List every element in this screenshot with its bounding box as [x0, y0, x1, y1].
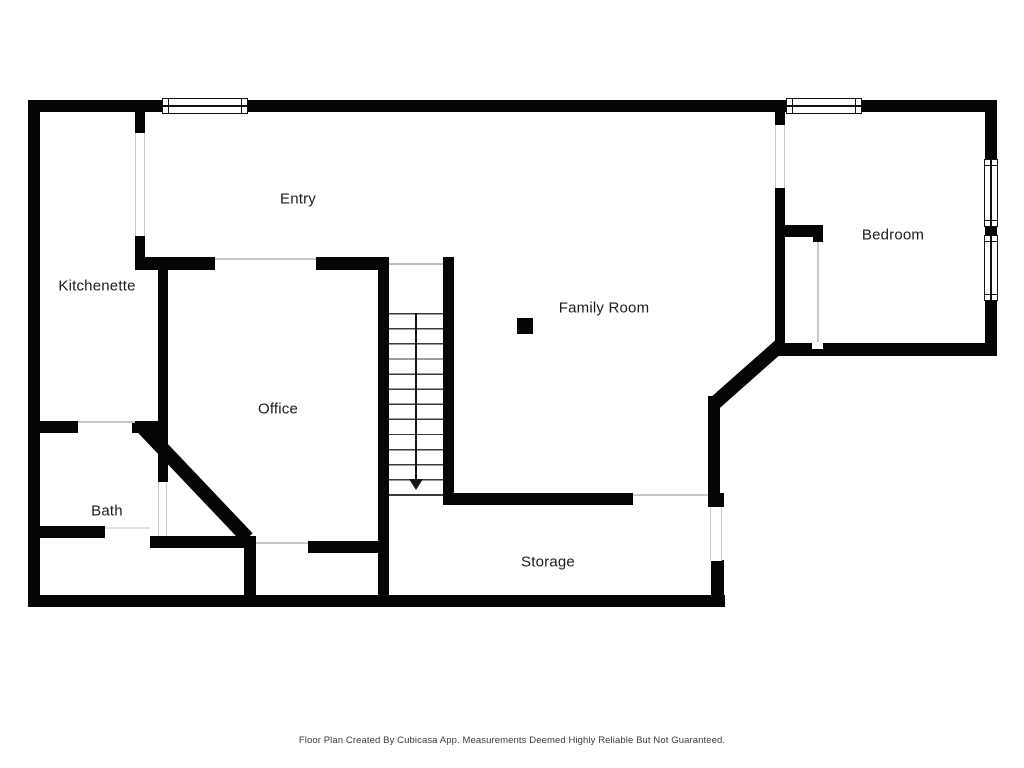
- window-glass-line: [163, 105, 247, 106]
- wall-exterior-bottom: [28, 595, 725, 607]
- wall-kitchenette-entry-upper: [135, 100, 145, 133]
- wall-storage-right-lower: [711, 560, 724, 607]
- room-label-kitchenette: Kitchenette: [58, 278, 135, 295]
- diagonal-wall-bath-office: [138, 423, 253, 543]
- door-opening-bedroom: [775, 125, 785, 188]
- room-label-entry: Entry: [280, 191, 316, 208]
- floor-plan-canvas: Entry Kitchenette Bedroom Family Room Of…: [0, 0, 1024, 768]
- wall-bedroom-left-upper: [775, 100, 785, 125]
- wall-entry-bottom-left: [135, 257, 215, 270]
- wall-bath-bottom-stub: [28, 526, 105, 538]
- window-icon-bedroom-right-lower: [984, 235, 998, 301]
- wall-office-bottom: [308, 541, 389, 553]
- wall-closet-right: [244, 536, 256, 607]
- door-opening-storage-right: [710, 507, 722, 561]
- door-opening-office-bottom: [256, 542, 308, 544]
- wall-bedroom-closet-stub-end: [813, 225, 823, 242]
- wall-bedroom-left-lower: [775, 188, 785, 356]
- wall-storage-top: [443, 493, 633, 505]
- column-post-icon: [517, 318, 533, 334]
- diagonal-wall-family-room: [710, 338, 787, 408]
- wall-family-room-right: [708, 396, 720, 496]
- window-icon-top-left: [162, 98, 248, 114]
- window-glass-line: [990, 160, 991, 226]
- staircase: [389, 313, 443, 496]
- wall-bath-top-left: [28, 421, 78, 433]
- room-label-bedroom: Bedroom: [862, 227, 924, 244]
- door-opening-bath: [78, 421, 135, 423]
- window-icon-bedroom-right-upper: [984, 159, 998, 227]
- door-opening-bath-closet: [105, 527, 150, 529]
- door-notch-bedroom-closet: [812, 343, 823, 349]
- wall-bedroom-bottom: [775, 343, 997, 356]
- stairs-direction-line: [415, 313, 417, 481]
- room-label-family-room: Family Room: [559, 300, 650, 317]
- room-label-office: Office: [258, 401, 298, 418]
- window-glass-line: [787, 105, 861, 106]
- room-label-storage: Storage: [521, 554, 575, 571]
- closet-door-line-bedroom: [817, 242, 819, 342]
- room-label-bath: Bath: [91, 503, 123, 520]
- wall-bedroom-right: [985, 100, 997, 356]
- stairs-direction-arrow-down-icon: [409, 479, 423, 490]
- window-glass-line: [990, 236, 991, 300]
- stairs-top-boundary-line: [389, 263, 443, 265]
- door-opening-entry-office: [215, 258, 316, 260]
- footer-attribution-text: Floor Plan Created By Cubicasa App. Meas…: [0, 735, 1024, 746]
- door-opening-office-left: [158, 482, 167, 536]
- wall-office-right: [378, 257, 389, 607]
- window-icon-top-right: [786, 98, 862, 114]
- door-opening-storage-top: [633, 494, 708, 496]
- wall-stairs-right: [443, 257, 454, 505]
- door-opening-kitchenette-entry: [135, 133, 145, 236]
